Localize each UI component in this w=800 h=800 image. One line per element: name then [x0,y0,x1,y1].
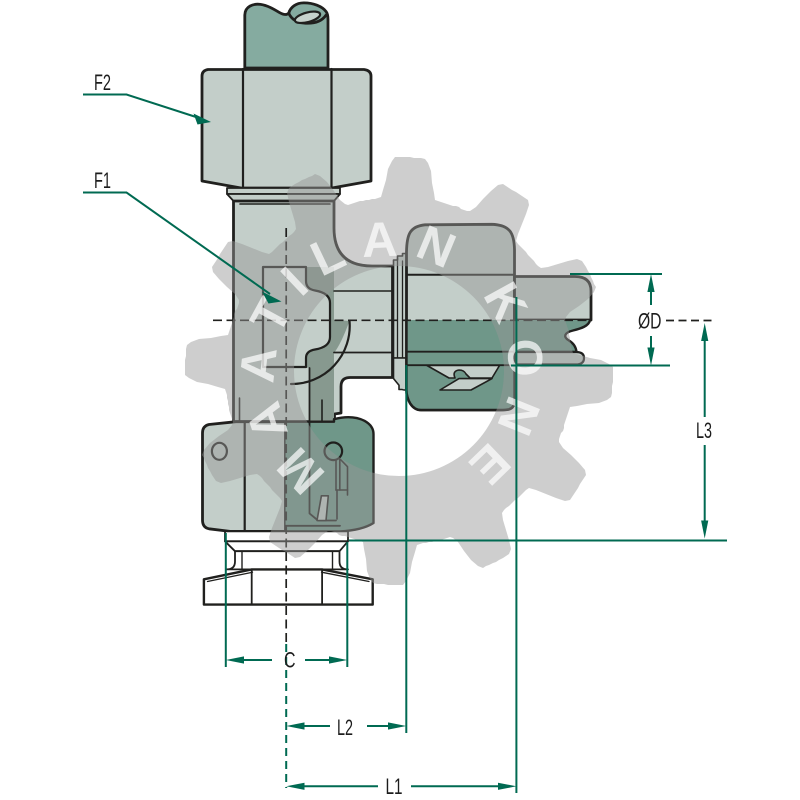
svg-text:L3: L3 [696,418,712,443]
svg-text:L2: L2 [337,715,353,740]
svg-text:ØD: ØD [638,309,662,334]
svg-text:F1: F1 [94,168,111,193]
svg-text:F2: F2 [94,70,111,95]
svg-text:L1: L1 [386,774,403,799]
svg-text:C: C [284,648,296,673]
